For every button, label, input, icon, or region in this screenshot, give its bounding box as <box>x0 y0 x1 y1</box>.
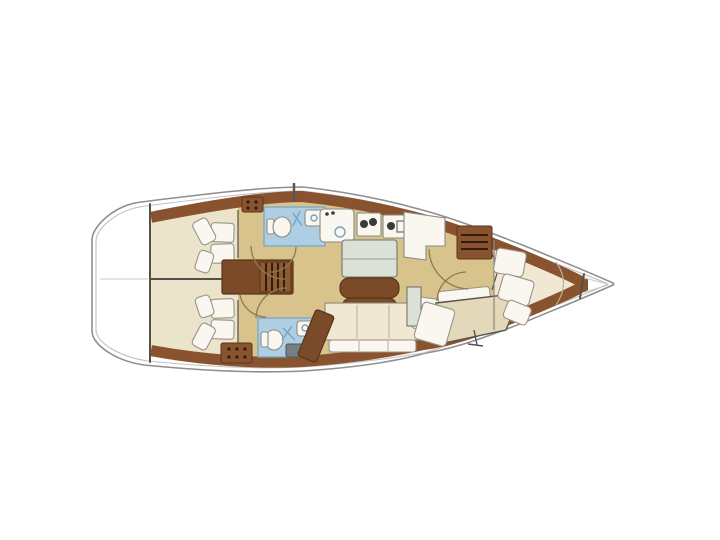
burner-icon <box>360 220 368 228</box>
faucet-dot <box>325 212 329 216</box>
pillow <box>493 248 527 278</box>
locker-cabinet-top <box>242 197 263 212</box>
toilet-tank <box>261 332 268 347</box>
pillow <box>211 299 235 319</box>
table-folding-leaf <box>340 278 399 298</box>
galley-sink-unit <box>320 209 354 242</box>
yacht-floorplan-image <box>0 0 720 540</box>
toilet-icon <box>273 217 291 237</box>
burner-icon <box>387 222 395 230</box>
faucet-dot <box>331 211 335 215</box>
settee-back-cushions <box>329 340 416 352</box>
burner-icon <box>369 218 377 226</box>
settee-bench <box>325 303 420 340</box>
locker-cabinet-bottom <box>221 343 252 363</box>
head-starboard <box>264 207 325 246</box>
